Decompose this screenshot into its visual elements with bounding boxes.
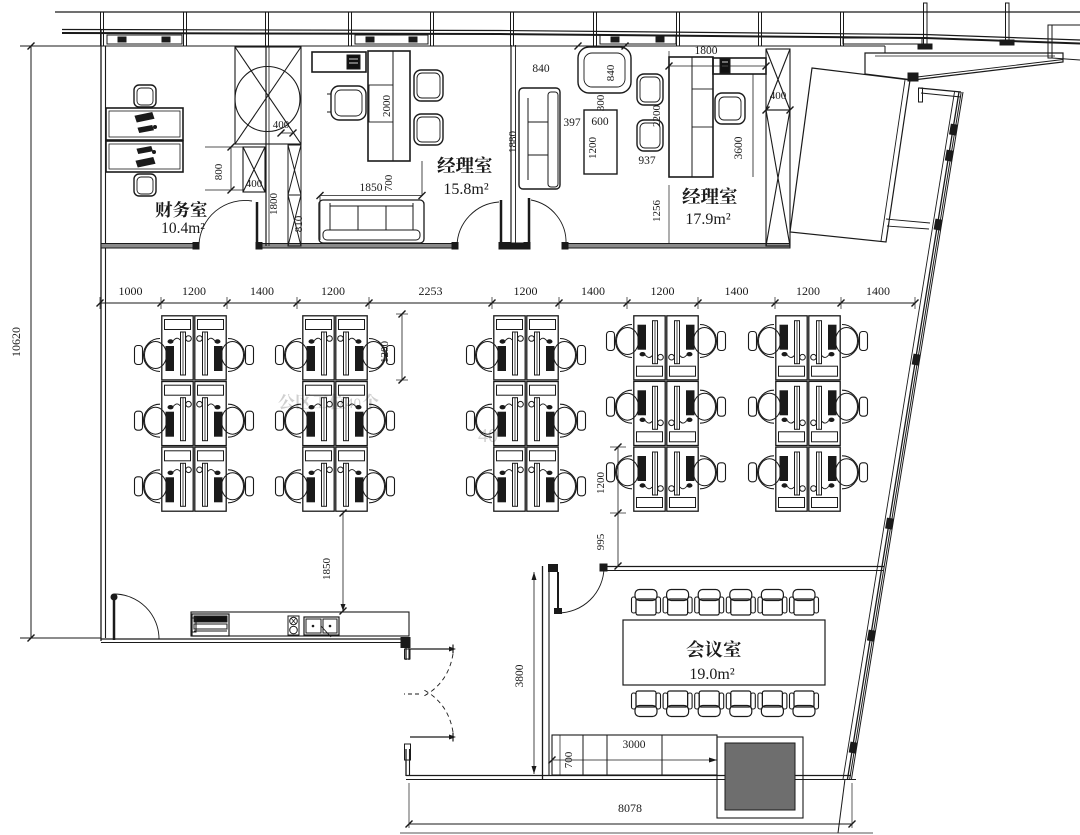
svg-text:1850: 1850 [360,182,383,194]
svg-text:3000: 3000 [623,739,646,751]
svg-text:600: 600 [591,116,609,128]
svg-text:15.8m²: 15.8m² [443,181,488,198]
svg-text:300: 300 [595,94,607,111]
svg-text:400: 400 [273,119,290,131]
svg-text:10620: 10620 [9,327,23,357]
svg-text:1200: 1200 [796,284,820,298]
svg-text:700: 700 [383,174,395,191]
svg-text:1400: 1400 [581,284,605,298]
svg-text:995: 995 [595,533,607,550]
svg-text:800: 800 [213,163,225,180]
svg-text:2253: 2253 [419,284,443,298]
svg-text:400: 400 [770,90,787,102]
svg-text:1200: 1200 [587,137,599,160]
svg-text:1256: 1256 [651,200,663,223]
svg-text:1850: 1850 [321,558,333,581]
svg-text:937: 937 [638,155,656,167]
svg-text:1400: 1400 [866,284,890,298]
svg-text:1800: 1800 [268,193,280,216]
svg-text:40: 40 [478,425,498,447]
svg-text:1200: 1200 [321,284,345,298]
svg-text:2000: 2000 [381,95,393,118]
svg-text:17.9m²: 17.9m² [685,211,730,228]
svg-text:1000: 1000 [119,284,143,298]
svg-text:1200: 1200 [595,472,607,495]
svg-text:3800: 3800 [514,664,526,687]
svg-text:1200: 1200 [514,284,538,298]
svg-text:1200: 1200 [379,341,391,364]
svg-text:1880: 1880 [507,131,519,154]
svg-text:1400: 1400 [725,284,749,298]
svg-text:810: 810 [293,215,305,232]
svg-text:400: 400 [246,178,263,190]
svg-text:1800: 1800 [695,45,718,57]
svg-text:397: 397 [563,117,581,129]
svg-text:19.0m²: 19.0m² [689,666,734,683]
svg-text:3600: 3600 [733,136,745,159]
svg-text:1200: 1200 [651,284,675,298]
svg-text:1400: 1400 [250,284,274,298]
svg-text:1200: 1200 [182,284,206,298]
svg-text:10.4m²: 10.4m² [161,220,205,237]
svg-text:8078: 8078 [618,801,642,815]
svg-text:2200: 2200 [651,105,663,128]
svg-text:840: 840 [532,63,550,75]
svg-text:840: 840 [605,64,617,81]
